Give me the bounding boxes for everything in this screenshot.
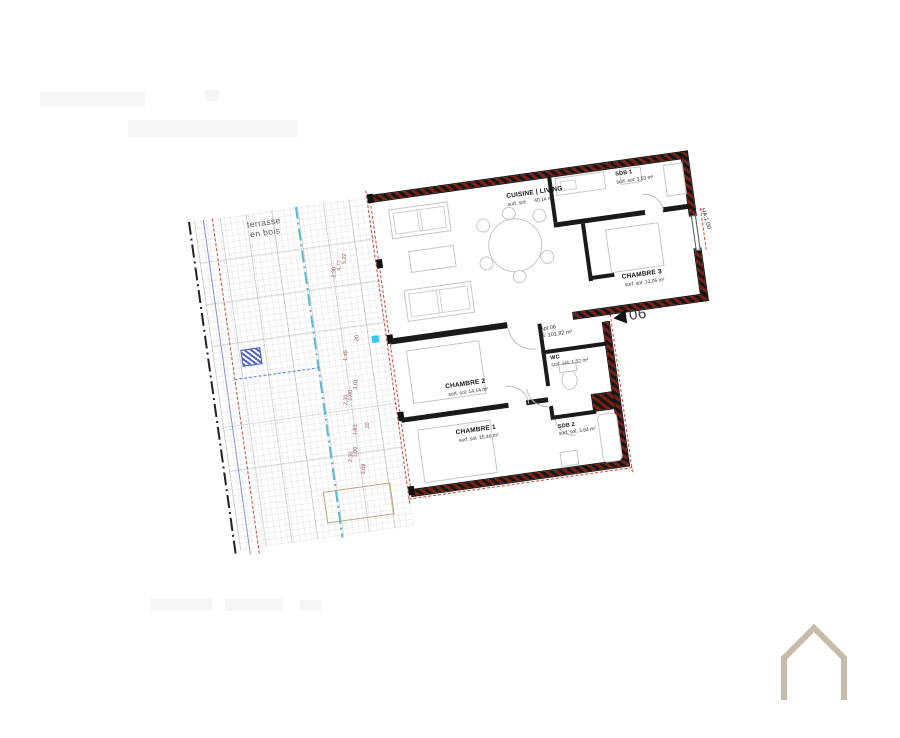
sdb2-sink <box>559 450 579 467</box>
facade-post <box>367 194 374 204</box>
bed-chambre2 <box>406 340 487 404</box>
scan-artifact <box>128 120 298 137</box>
sofa-cushion <box>436 285 471 313</box>
dimension-label: 3,01 <box>353 379 359 390</box>
wall-chunk-sdb2 <box>592 392 615 411</box>
unit-marker: 06 <box>612 305 648 327</box>
bed-chambre3 <box>605 222 665 273</box>
scan-artifact <box>225 598 283 611</box>
dimension-label: 1,45 <box>343 350 349 361</box>
planter-hatch <box>240 347 262 367</box>
unit-marker-number: 06 <box>628 305 648 324</box>
unit-marker-triangle-icon <box>612 309 627 325</box>
scan-artifact <box>150 598 212 611</box>
scan-artifact <box>205 90 219 101</box>
sdb1-shower <box>663 162 687 196</box>
cyan-reference-marker <box>372 335 380 343</box>
dimension-label: 10 <box>365 422 371 428</box>
dimension-label: 20 <box>354 335 360 341</box>
dimension-label: 2,30 <box>331 267 337 278</box>
dimension-label: 2,30 <box>348 451 354 462</box>
scan-artifact <box>300 600 322 611</box>
floor-plan: CUISINE | LIVING surf. sol:40,14 m² SDB … <box>370 149 751 513</box>
dimension-label: 3,09 <box>361 464 367 475</box>
scan-artifact <box>40 92 145 107</box>
facade-post <box>376 259 383 269</box>
sofa-cushion <box>416 206 447 232</box>
facade-post <box>408 486 415 496</box>
dimension-label: 1,81 <box>352 424 358 435</box>
dimension-label: 2,30 <box>343 394 349 405</box>
house-logo-icon <box>774 620 854 702</box>
